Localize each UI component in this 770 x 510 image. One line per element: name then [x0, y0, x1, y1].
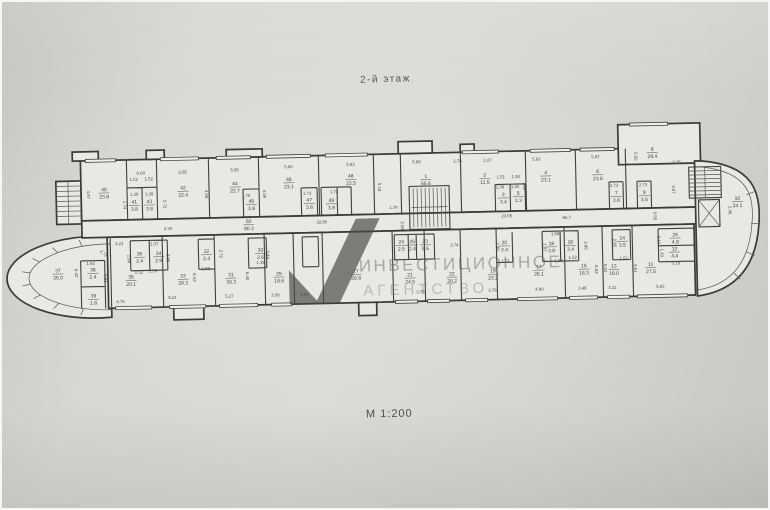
svg-text:33: 33 — [180, 273, 186, 279]
svg-text:3.8: 3.8 — [146, 206, 153, 212]
dimension-label: 5.85 — [178, 170, 187, 175]
svg-text:30: 30 — [258, 248, 264, 254]
svg-text:41: 41 — [131, 199, 137, 205]
dimension-label: 5.62 — [603, 264, 608, 273]
svg-text:13: 13 — [611, 264, 617, 270]
dimension-label: 1.52 — [619, 256, 628, 261]
svg-text:24.1: 24.1 — [733, 203, 743, 209]
floor-plan-drawing: 4023.8413.8433.84222.44422.7453.84623.14… — [2, 2, 770, 510]
dimension-label: 2.46 — [728, 206, 733, 215]
svg-text:1: 1 — [424, 174, 427, 180]
svg-text:2.4: 2.4 — [409, 246, 416, 252]
svg-text:46: 46 — [286, 177, 292, 183]
dimension-label: 2.34 — [164, 226, 173, 231]
svg-text:16: 16 — [567, 240, 573, 246]
top-right-block — [618, 123, 701, 165]
svg-text:3.5: 3.5 — [619, 243, 626, 249]
svg-text:26: 26 — [672, 232, 678, 238]
dimension-label: 2.87 — [542, 243, 547, 252]
dimension-label: 2.73 — [639, 182, 648, 187]
svg-text:3.4: 3.4 — [500, 199, 507, 205]
svg-text:2.5: 2.5 — [398, 247, 405, 253]
dimension-label: 3.07 — [671, 185, 676, 194]
svg-text:20: 20 — [501, 240, 507, 246]
svg-text:3.8: 3.8 — [306, 205, 313, 211]
dimension-label: 1.40 — [511, 184, 520, 189]
svg-text:47: 47 — [306, 197, 312, 203]
svg-text:8: 8 — [651, 147, 654, 153]
dimension-label: 1.39 — [256, 260, 265, 265]
dimension-label: 4.75 — [116, 299, 125, 304]
dimension-label: 1.52 — [145, 176, 154, 181]
dimension-label: 2.73 — [610, 183, 619, 188]
dimension-label: 2.85 — [612, 239, 617, 248]
dimension-label: 1.36 — [496, 184, 505, 189]
svg-text:11: 11 — [648, 262, 654, 268]
dimension-label: 3.74 — [450, 242, 459, 247]
svg-text:25: 25 — [409, 239, 415, 245]
svg-text:3.8: 3.8 — [131, 207, 138, 213]
svg-text:3: 3 — [502, 192, 505, 198]
dimension-label: 6.40 — [245, 272, 250, 281]
svg-text:4.8: 4.8 — [672, 239, 679, 245]
svg-text:49: 49 — [328, 198, 334, 204]
svg-text:35: 35 — [128, 275, 134, 281]
svg-text:2.9: 2.9 — [155, 258, 162, 264]
svg-text:23.1: 23.1 — [541, 177, 551, 183]
svg-text:3.5: 3.5 — [641, 197, 648, 203]
dimension-label: 4.80 — [535, 286, 544, 291]
svg-text:2.4: 2.4 — [89, 275, 96, 281]
dimension-label: 1.50 — [512, 174, 521, 179]
svg-text:30.3: 30.3 — [226, 279, 236, 285]
dimension-label: 1.75 — [242, 193, 251, 198]
svg-text:37: 37 — [55, 268, 61, 274]
svg-text:42: 42 — [180, 185, 186, 191]
dimension-label: 5.83 — [656, 284, 665, 289]
svg-text:20.1: 20.1 — [126, 282, 136, 288]
dimension-label: 3.58 — [271, 292, 280, 297]
right-curved-end — [695, 160, 762, 296]
dimension-label: 2.72 — [162, 200, 167, 209]
svg-text:23.6: 23.6 — [593, 176, 603, 182]
dimension-label: 3.11 — [608, 285, 617, 290]
dimension-label: 5.50 — [653, 212, 658, 221]
dimension-label: 2.72 — [218, 250, 223, 259]
dimension-label: 2.84 — [126, 255, 131, 264]
svg-text:7: 7 — [615, 191, 618, 197]
dimension-label: 1.39 — [130, 192, 139, 197]
dimension-label: 3.27 — [483, 158, 492, 163]
svg-text:12: 12 — [672, 246, 678, 252]
svg-text:18.3: 18.3 — [579, 270, 589, 276]
svg-text:2.4: 2.4 — [203, 256, 210, 262]
dimension-label: 1.73 — [303, 191, 312, 196]
svg-text:48: 48 — [348, 174, 354, 180]
dimension-label: 6.43 — [192, 273, 197, 282]
dimension-label: 1.78 — [389, 205, 398, 210]
svg-text:3.8: 3.8 — [613, 198, 620, 204]
svg-text:14: 14 — [619, 235, 625, 241]
svg-text:15: 15 — [581, 263, 587, 269]
dimension-label: 6.63 — [594, 265, 599, 274]
dimension-label: 2.48 — [495, 242, 500, 251]
dimension-label: 1.52 — [135, 270, 144, 275]
svg-text:50: 50 — [246, 219, 252, 225]
svg-text:4: 4 — [544, 170, 547, 176]
svg-text:29.8: 29.8 — [351, 276, 361, 282]
svg-text:39: 39 — [91, 293, 97, 299]
dimension-label: 5.82 — [346, 162, 355, 167]
svg-text:2.4: 2.4 — [136, 259, 143, 265]
dimension-label: 5.27 — [225, 293, 234, 298]
svg-text:44: 44 — [232, 181, 238, 187]
dimension-label: 3.48 — [578, 285, 587, 290]
dimension-label: 1.58 — [551, 231, 560, 236]
svg-text:2: 2 — [483, 173, 486, 179]
svg-text:9: 9 — [643, 190, 646, 196]
watermark-line2: АГЕНТСТВО — [363, 280, 488, 300]
dimension-label: 2.85 — [583, 241, 588, 250]
svg-text:23: 23 — [422, 239, 428, 245]
svg-text:3.4: 3.4 — [567, 247, 574, 253]
svg-text:4.4: 4.4 — [671, 253, 678, 259]
dimension-label: 1.55 — [149, 268, 158, 273]
dimension-label: 2.50 — [400, 221, 405, 230]
svg-text:29.3: 29.3 — [178, 281, 188, 287]
svg-text:29: 29 — [276, 271, 282, 277]
dimension-label: 4.47 — [522, 183, 527, 192]
dimension-label: 5.18 — [377, 183, 382, 192]
svg-text:23.1: 23.1 — [284, 184, 294, 190]
svg-text:6: 6 — [596, 169, 599, 175]
dimension-label: 1.55 — [202, 266, 211, 271]
svg-text:55.6: 55.6 — [421, 181, 431, 187]
dimension-label: 1.43 — [659, 249, 664, 258]
svg-text:32: 32 — [204, 249, 210, 255]
svg-text:18: 18 — [549, 241, 555, 247]
dimension-label: 3.21 — [115, 241, 124, 246]
dimension-label: 5.99 — [412, 159, 421, 164]
svg-text:40: 40 — [101, 187, 107, 193]
svg-text:23.5: 23.5 — [346, 181, 356, 187]
dimension-label: 8.43 — [74, 269, 79, 278]
svg-text:23.2: 23.2 — [488, 275, 498, 281]
dimension-label: 2.85 — [165, 254, 170, 263]
svg-text:5: 5 — [517, 191, 520, 197]
svg-text:26.1: 26.1 — [534, 271, 544, 277]
dimension-label: 5.61 — [633, 264, 638, 273]
dimension-label: 1.73 — [330, 189, 339, 194]
dimension-label: 3.42 — [656, 236, 661, 245]
dimension-label: 5.50 — [633, 152, 638, 161]
dimension-label: 60.7 — [563, 215, 572, 220]
svg-text:24: 24 — [398, 239, 404, 245]
svg-text:45: 45 — [248, 199, 254, 205]
svg-text:43: 43 — [146, 199, 152, 205]
dimension-label: 3.15 — [672, 159, 681, 164]
svg-text:22.7: 22.7 — [230, 188, 240, 194]
svg-text:5.5: 5.5 — [422, 246, 429, 252]
svg-text:35.0: 35.0 — [53, 275, 63, 281]
dimension-label: 5.80 — [284, 164, 293, 169]
svg-text:80.3: 80.3 — [244, 226, 254, 232]
dimension-label: 5.85 — [230, 167, 239, 172]
svg-text:10: 10 — [735, 196, 741, 202]
dimension-label: 3.44 — [265, 250, 270, 259]
svg-text:34: 34 — [156, 251, 162, 257]
svg-text:22.4: 22.4 — [178, 193, 188, 199]
dimension-label: 1.62 — [86, 261, 95, 266]
dimension-label: 1.39 — [145, 191, 154, 196]
svg-text:28.4: 28.4 — [647, 154, 657, 160]
dimension-label: 6.09 — [136, 170, 145, 175]
svg-text:27.5: 27.5 — [646, 269, 656, 275]
svg-text:18.0: 18.0 — [609, 271, 619, 277]
svg-text:23.8: 23.8 — [99, 194, 109, 200]
dimension-label: 3.19 — [672, 260, 681, 265]
svg-text:38: 38 — [90, 267, 96, 273]
dimension-label: 3.91 — [103, 274, 108, 283]
dimension-label: 5.21 — [168, 295, 177, 300]
scanned-floor-plan: 2-й этаж М 1:200 — [0, 0, 770, 510]
svg-text:3.3: 3.3 — [515, 198, 522, 204]
dimension-label: 2.78 — [453, 158, 462, 163]
svg-text:31: 31 — [228, 272, 234, 278]
svg-text:3.8: 3.8 — [248, 206, 255, 212]
svg-text:36: 36 — [137, 251, 143, 257]
dimension-label: 1.37 — [150, 241, 159, 246]
dimension-label: 1.52 — [130, 177, 139, 182]
svg-text:11.5: 11.5 — [480, 180, 490, 186]
dimension-label: 4.08 — [262, 190, 267, 199]
dimension-label: 1.51 — [497, 174, 506, 179]
dimension-label: 5.83 — [532, 156, 541, 161]
dimension-label: 3.76 — [488, 288, 497, 293]
svg-text:18.6: 18.6 — [274, 278, 284, 284]
dimension-label: 4.87 — [86, 191, 91, 200]
dimension-label: 1.52 — [568, 255, 577, 260]
facade-bay — [398, 141, 432, 154]
dimension-label: 4.58 — [204, 190, 209, 199]
svg-text:1.8: 1.8 — [90, 301, 97, 307]
dimension-label: 23.55 — [501, 213, 512, 218]
svg-text:3.8: 3.8 — [328, 205, 335, 211]
dimension-label: 1.74 — [122, 201, 127, 210]
dimension-label: 32.85 — [316, 219, 327, 224]
dimension-label: 5.87 — [591, 154, 600, 159]
facade-bay — [359, 302, 377, 315]
